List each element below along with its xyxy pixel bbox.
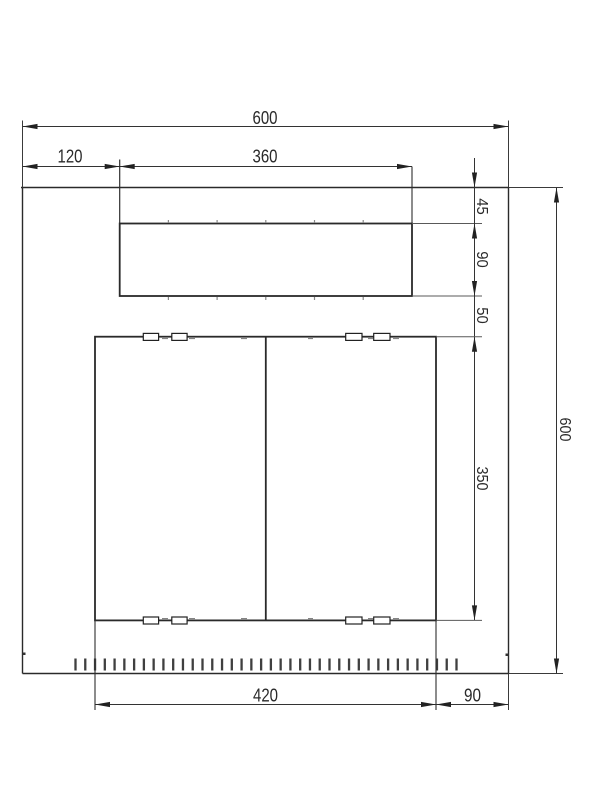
svg-text:600: 600 — [253, 107, 278, 128]
svg-text:420: 420 — [253, 685, 278, 706]
svg-text:120: 120 — [58, 146, 83, 167]
svg-text:90: 90 — [464, 685, 481, 706]
svg-text:600: 600 — [556, 418, 573, 442]
svg-text:90: 90 — [473, 251, 490, 268]
svg-text:50: 50 — [473, 307, 490, 324]
svg-text:350: 350 — [473, 467, 490, 491]
svg-text:360: 360 — [253, 146, 278, 167]
svg-text:45: 45 — [473, 198, 490, 215]
